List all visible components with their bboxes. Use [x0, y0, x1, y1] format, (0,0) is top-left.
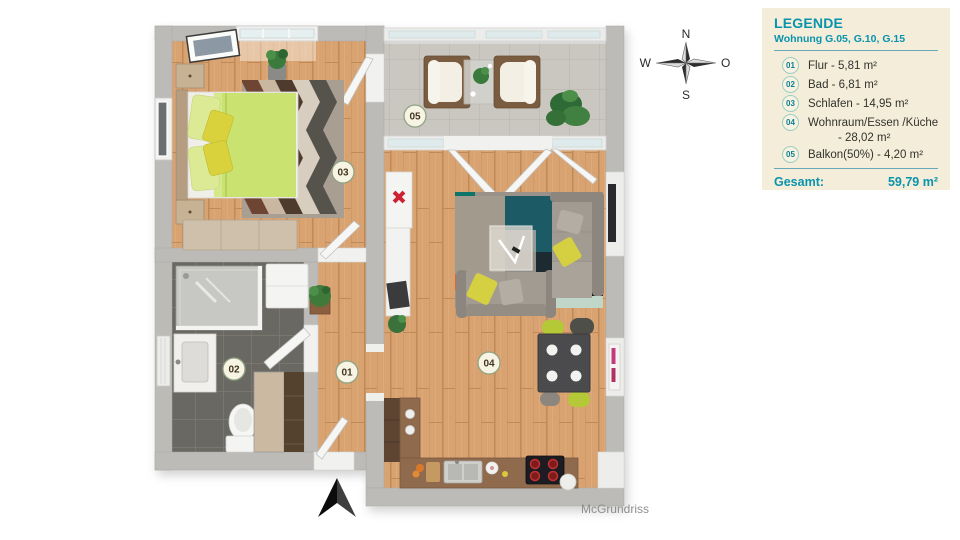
balcony-chair-right — [494, 56, 540, 108]
svg-text:04: 04 — [483, 359, 495, 370]
bathroom-radiator — [157, 336, 170, 386]
dining-chair-lime-bottom — [568, 392, 590, 407]
room-label-balkon: 05 — [404, 105, 426, 127]
tv-screen — [608, 184, 616, 242]
legend-label-wohnraum-line2: - 28,02 m² — [838, 132, 938, 144]
compass-east-label: O — [721, 56, 730, 70]
bottom-right-corner-cap — [598, 452, 624, 488]
svg-text:05: 05 — [409, 112, 421, 123]
legend-title: LEGENDE — [774, 15, 938, 31]
sofa-bottom — [456, 270, 556, 318]
apartment-plan: 01 02 03 04 05 — [155, 26, 624, 506]
legend-badge-05: 05 — [782, 146, 799, 163]
room-label-flur: 01 — [336, 361, 358, 383]
room-label-wohnraum: 04 — [478, 352, 500, 374]
room-label-schlafen: 03 — [332, 161, 354, 183]
legend-divider-bottom — [774, 168, 938, 169]
legend-label-bad: Bad - 6,81 m² — [808, 79, 878, 91]
compass-west-label: W — [640, 56, 652, 70]
stove — [526, 456, 564, 484]
bedroom-side-window — [155, 98, 172, 160]
sink-faucet — [176, 360, 181, 365]
hallway-plant — [309, 285, 331, 314]
wardrobe — [183, 220, 297, 250]
hall-living-passage-floor — [366, 350, 384, 395]
legend-items: 01 Flur - 5,81 m² 02 Bad - 6,81 m² 03 Sc… — [774, 57, 938, 163]
legend-total-label: Gesamt: — [774, 175, 824, 189]
passage-cap-bottom — [366, 393, 384, 401]
hallway-furniture — [309, 285, 331, 314]
balcony-chair-left — [424, 56, 470, 108]
tv-wall-niche — [606, 172, 624, 256]
kitchen-tall-unit — [384, 398, 400, 462]
legend-badge-01: 01 — [782, 57, 799, 74]
legend-label-wohnraum: Wohnraum/Essen /Küche — [808, 117, 938, 129]
legend-divider-top — [774, 50, 938, 51]
nightstand-top — [176, 64, 204, 88]
compass-rose-icon: N W O S — [640, 27, 731, 102]
balcony-railing — [384, 28, 606, 41]
balcony-door-band — [384, 136, 606, 150]
legend-badge-04: 04 — [782, 114, 799, 131]
dining-chair-lime-top — [542, 320, 564, 335]
bed-headboard — [176, 90, 188, 200]
shower-drain — [183, 273, 189, 279]
svg-text:01: 01 — [341, 368, 353, 379]
legend-item-bad: 02 Bad - 6,81 m² — [774, 76, 938, 93]
floorplan-page: 01 02 03 04 05 — [0, 0, 960, 540]
desk-sideboard — [386, 228, 410, 316]
legend-label-flur: Flur - 5,81 m² — [808, 60, 877, 72]
legend-total-row: Gesamt: 59,79 m² — [774, 175, 938, 189]
legend-subtitle: Wohnung G.05, G.10, G.15 — [774, 33, 938, 45]
legend-item-balkon: 05 Balkon(50%) - 4,20 m² — [774, 146, 938, 163]
legend-item-schlafen: 03 Schlafen - 14,95 m² — [774, 95, 938, 112]
lemon — [502, 471, 508, 477]
legend-label-balkon: Balkon(50%) - 4,20 m² — [808, 149, 923, 161]
bathroom-sink — [174, 334, 216, 392]
wall-right — [606, 26, 624, 488]
desk-plant — [388, 315, 406, 333]
legend-panel: LEGENDE Wohnung G.05, G.10, G.15 01 Flur… — [762, 8, 950, 190]
dining-window — [606, 338, 624, 396]
dining-table — [538, 334, 590, 392]
legend-item-flur: 01 Flur - 5,81 m² — [774, 57, 938, 74]
watermark: McGrundriss — [581, 502, 649, 516]
compass-north-label: N — [682, 27, 691, 41]
legend-item-wohnraum: 04 Wohnraum/Essen /Küche — [774, 114, 938, 131]
compass-south-label: S — [682, 88, 690, 102]
dining-chair-gray-bottom — [540, 392, 560, 406]
hallway-closet — [254, 372, 304, 452]
sofa-right — [550, 192, 604, 298]
coffee-table — [490, 226, 532, 270]
balcony-table — [464, 60, 498, 104]
cutting-board — [426, 462, 440, 482]
shower — [176, 266, 262, 330]
dining-chair-dark-top — [570, 318, 594, 335]
passage-cap-top — [366, 344, 384, 352]
laptop — [386, 281, 409, 310]
first-aid-cabinet — [386, 172, 412, 228]
legend-badge-02: 02 — [782, 76, 799, 93]
legend-total-value: 59,79 m² — [888, 175, 938, 189]
sofa-pillow-gray — [498, 278, 524, 305]
legend-label-schlafen: Schlafen - 14,95 m² — [808, 98, 908, 110]
kitchen-sink — [444, 460, 482, 483]
svg-text:02: 02 — [228, 365, 240, 376]
legend-badge-03: 03 — [782, 95, 799, 112]
svg-text:03: 03 — [337, 168, 349, 179]
wall-kitchen-left — [366, 395, 384, 488]
bed — [176, 90, 298, 200]
bedroom-plant — [266, 49, 288, 80]
bathroom-cabinet — [266, 264, 308, 308]
room-label-bad: 02 — [223, 358, 245, 380]
entrance-arrow-icon — [318, 478, 356, 517]
pot — [560, 474, 576, 490]
